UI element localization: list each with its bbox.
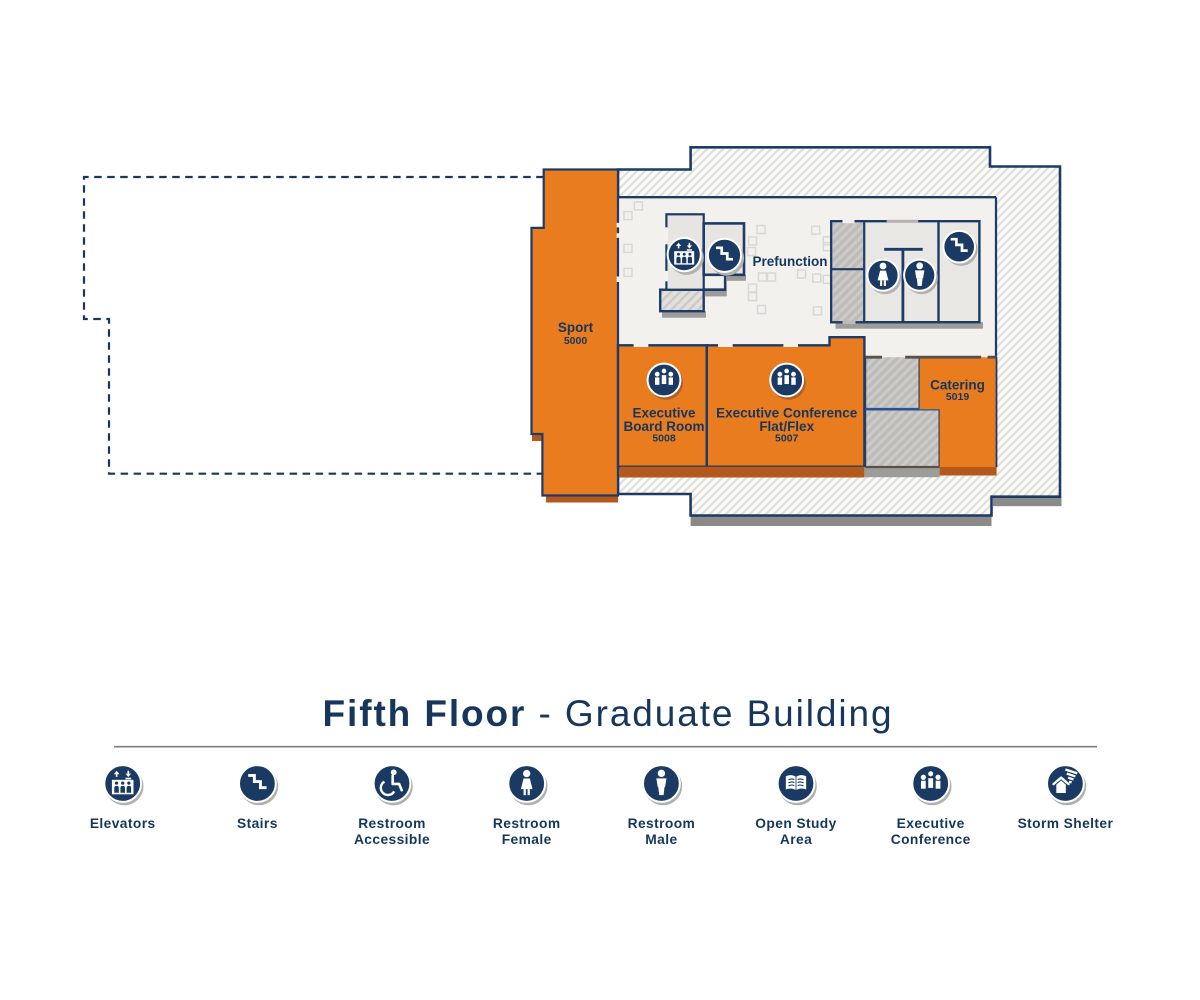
svg-text:Storm Shelter: Storm Shelter bbox=[1018, 816, 1114, 831]
svg-text:Executive: Executive bbox=[897, 816, 965, 831]
svg-text:Restroom: Restroom bbox=[358, 816, 426, 831]
svg-text:Prefunction: Prefunction bbox=[753, 254, 828, 269]
svg-text:Fifth Floor - Graduate Buildin: Fifth Floor - Graduate Building bbox=[323, 693, 894, 734]
svg-text:Restroom: Restroom bbox=[628, 816, 696, 831]
svg-text:5019: 5019 bbox=[946, 391, 970, 403]
svg-text:Open Study: Open Study bbox=[755, 816, 836, 831]
svg-text:Conference: Conference bbox=[891, 832, 971, 847]
svg-text:Restroom: Restroom bbox=[493, 816, 561, 831]
svg-text:Area: Area bbox=[780, 832, 812, 847]
svg-text:5007: 5007 bbox=[775, 433, 799, 445]
svg-text:Stairs: Stairs bbox=[237, 816, 278, 831]
svg-text:5008: 5008 bbox=[652, 433, 676, 445]
svg-text:Female: Female bbox=[502, 832, 552, 847]
svg-text:Elevators: Elevators bbox=[90, 816, 156, 831]
svg-text:Accessible: Accessible bbox=[354, 832, 430, 847]
svg-text:Male: Male bbox=[645, 832, 677, 847]
svg-text:5000: 5000 bbox=[564, 335, 588, 347]
svg-text:Sport: Sport bbox=[558, 320, 594, 335]
